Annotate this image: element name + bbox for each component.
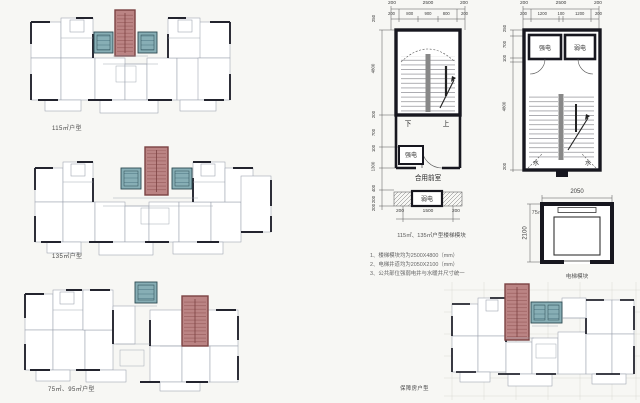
- dimension-label: 800: [443, 11, 450, 16]
- dimension-label: 200: [396, 209, 404, 214]
- weak-electric-room: 弱电: [394, 191, 462, 206]
- dimension-label: 100: [371, 145, 376, 152]
- stair-module-115-135: 强电 弱电 下 上 合用前室 200 2500 200 200 800 900 …: [366, 0, 501, 246]
- dimension-label: 100: [557, 11, 564, 16]
- dimension-label: 1200: [538, 11, 547, 16]
- floor-plan-135: [33, 146, 275, 258]
- elevator-block: [135, 282, 157, 303]
- dimension-label: 200: [502, 163, 507, 170]
- dimension-label: 200: [371, 196, 376, 203]
- dims-top-outer-a: 200 2500 200: [388, 1, 468, 6]
- dimension-label: 200: [371, 111, 376, 118]
- floor-plan-sheet: 115㎡户型: [0, 0, 640, 403]
- note-line-2: 2、电梯井道均为2050X2100（mm）: [370, 261, 465, 270]
- dimension-label: 200: [520, 1, 528, 6]
- floor-plan-support-drawing: [444, 282, 640, 400]
- dimension-label: 200: [460, 1, 468, 6]
- dimension-label: 200: [594, 1, 602, 6]
- floor-plan-75-95: [20, 280, 242, 392]
- dimension-label: 700: [502, 41, 507, 48]
- water-shaft-right-label: 水: [585, 159, 591, 167]
- dimension-label: 2050: [570, 189, 583, 195]
- dims-bottom-a: 200 1500 200: [396, 209, 460, 214]
- stair-core: [182, 296, 208, 346]
- dimension-label: 200: [452, 209, 460, 214]
- dims-top-outer-b: 200 2500 200: [520, 1, 602, 6]
- note-line-1: 1、楼梯模块均为2500X4800（mm）: [370, 252, 465, 261]
- dimension-label: 1500: [423, 209, 434, 214]
- stair-core: [145, 147, 168, 195]
- weak-electric-label: 弱电: [574, 44, 586, 52]
- stair-core: [115, 10, 135, 56]
- note-line-3: 3、公共部位强弱电井与水暖井尺寸统一: [370, 270, 465, 279]
- dims-top-inner-b: 200 1200 100 1200 200: [520, 11, 602, 16]
- plan-75-95-label: 75㎡、95㎡户型: [48, 384, 95, 393]
- dimension-label: 2500: [556, 1, 567, 6]
- stair-module-75-95-drawing: 强电 弱电 水 水: [498, 0, 638, 206]
- dimension-label: 200: [388, 11, 395, 16]
- plan-115-label: 115㎡户型: [52, 123, 82, 132]
- stair-core: [505, 284, 529, 340]
- elevator-block: [531, 302, 562, 323]
- dimension-label: 200: [595, 11, 602, 16]
- water-shaft-left-label: 水: [533, 159, 539, 167]
- strong-electric-room: 强电: [399, 146, 423, 164]
- dimension-label: 4800: [501, 102, 506, 112]
- floor-plan-115: [28, 4, 233, 122]
- strong-electric-room: 强电: [529, 35, 561, 59]
- drawing-notes: 1、楼梯模块均为2500X4800（mm） 2、电梯井道均为2050X2100（…: [370, 252, 465, 279]
- strong-electric-label: 强电: [539, 44, 551, 52]
- strong-electric-label: 强电: [405, 151, 417, 159]
- elevator-module: 2050 2100 电梯模块: [520, 190, 635, 284]
- dimension-label: 400: [371, 185, 376, 192]
- dimension-label: 1200: [575, 11, 584, 16]
- dimension-label: 4800: [370, 64, 375, 74]
- dimension-label: 700: [371, 129, 376, 136]
- stair-module-a-caption: 115㎡、135㎡户型楼梯模块: [374, 231, 489, 239]
- elevator-module-caption: 电梯模块: [542, 272, 612, 280]
- weak-electric-label: 弱电: [421, 195, 433, 203]
- elevator-width-dim: 2050: [542, 189, 612, 195]
- dimension-label: 250: [502, 25, 507, 32]
- floor-plan-support: [444, 282, 640, 400]
- dimension-label: 200: [388, 1, 396, 6]
- dimension-label: 2100: [523, 226, 529, 239]
- dimension-label: 200: [520, 11, 527, 16]
- stair-up-label: 上: [443, 119, 450, 128]
- dimension-label: 2500: [423, 1, 434, 6]
- weak-electric-room: 弱电: [565, 35, 595, 59]
- dimension-label: 200: [461, 11, 468, 16]
- dimension-label: 250: [371, 15, 376, 22]
- dims-top-inner-a: 200 800 900 800 200: [388, 11, 468, 16]
- dimension-label: 200: [371, 204, 376, 211]
- plan-135-label: 135㎡户型: [52, 251, 82, 260]
- stair-down-label: 下: [405, 120, 412, 128]
- dimension-label: 800: [406, 11, 413, 16]
- stair-module-115-135-drawing: 强电 弱电 下 上 合用前室: [366, 0, 501, 228]
- shared-lobby-label: 合用前室: [415, 173, 442, 182]
- plan-support-label: 保障房户型: [400, 384, 429, 392]
- dimension-label: 1300: [370, 162, 375, 172]
- dimension-label: 100: [502, 55, 507, 62]
- elevator-module-drawing: [520, 190, 635, 270]
- dimension-label: 900: [425, 11, 432, 16]
